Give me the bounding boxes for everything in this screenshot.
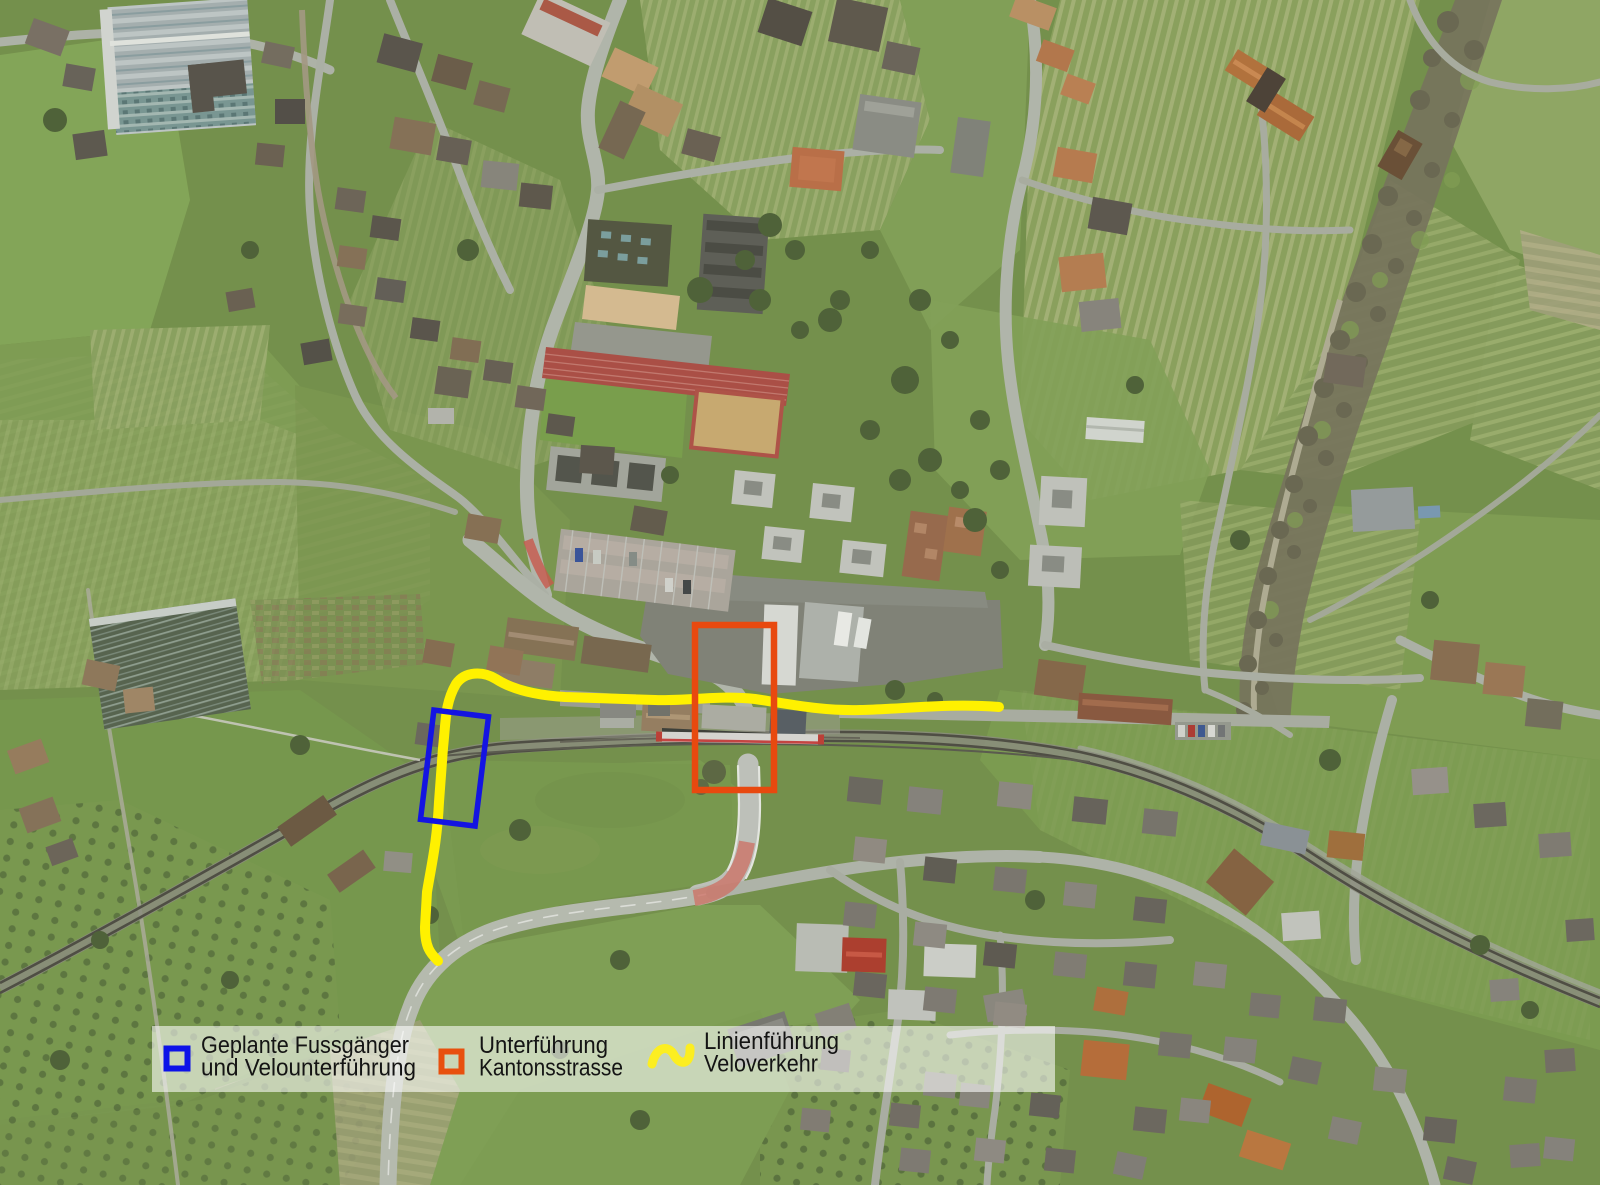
svg-text:und Velounterführung: und Velounterführung bbox=[201, 1055, 416, 1082]
svg-text:Kantonsstrasse: Kantonsstrasse bbox=[479, 1055, 623, 1082]
svg-text:Veloverkehr: Veloverkehr bbox=[704, 1051, 818, 1078]
